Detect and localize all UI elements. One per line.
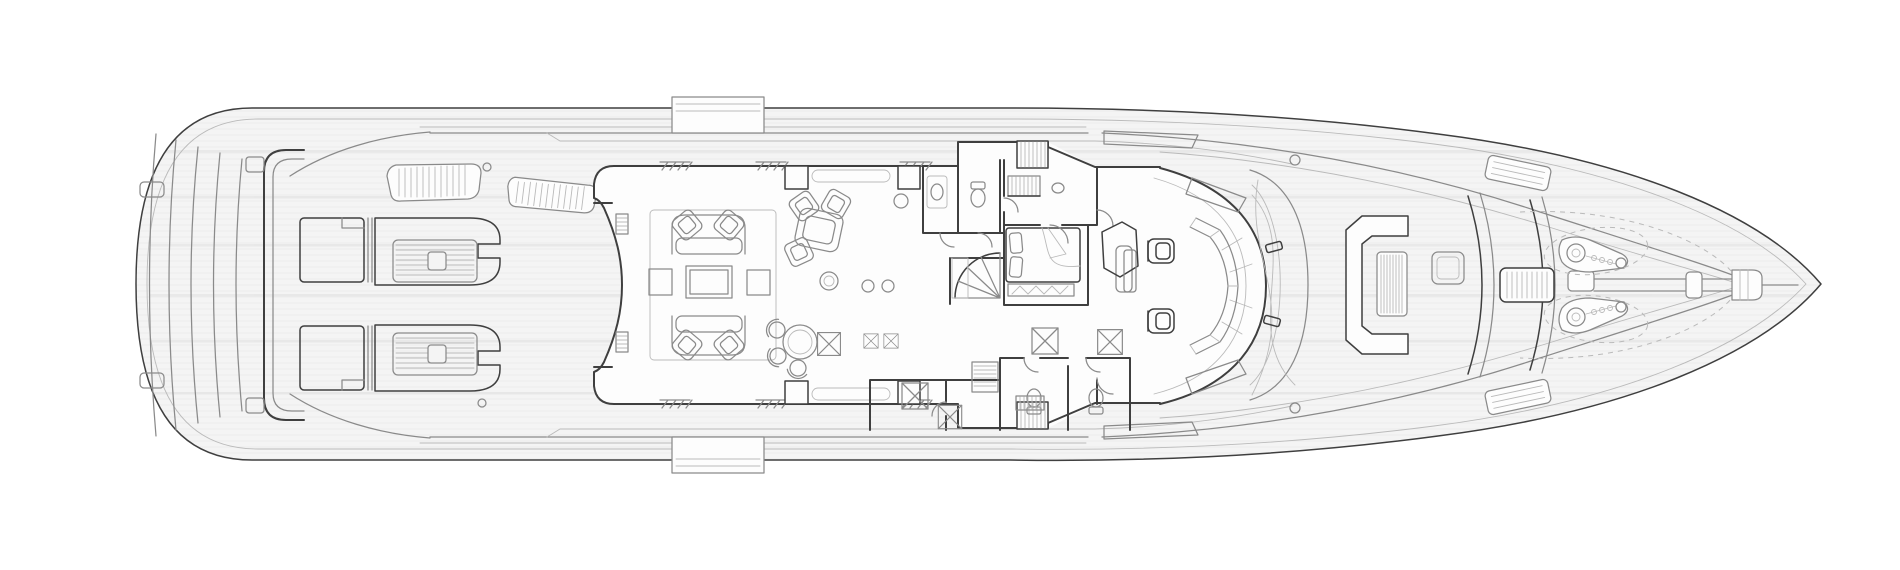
slatted-table — [1377, 252, 1407, 316]
chain-roller — [1568, 271, 1594, 291]
door-frame — [785, 381, 808, 404]
shaft-collar — [1686, 272, 1702, 298]
door-frame — [898, 381, 920, 404]
deck-plan-drawing — [0, 0, 1900, 570]
superstructure-floor — [594, 142, 1268, 428]
boarding-box-port — [672, 97, 764, 133]
engine-vent-grille-aft — [387, 164, 481, 201]
upper-staircase — [1017, 141, 1048, 168]
door-frame — [898, 166, 920, 189]
mattress-hatch — [428, 252, 446, 270]
chain-stopper — [1500, 268, 1554, 302]
boarding-box-starboard — [672, 437, 764, 473]
mattress-hatch — [428, 345, 446, 363]
yacht-deck-plan-canvas — [0, 0, 1900, 570]
lower-staircase-bulwark — [1017, 402, 1048, 429]
double-bed — [1006, 228, 1080, 282]
superstructure — [594, 142, 1268, 428]
door-frame — [785, 166, 808, 189]
